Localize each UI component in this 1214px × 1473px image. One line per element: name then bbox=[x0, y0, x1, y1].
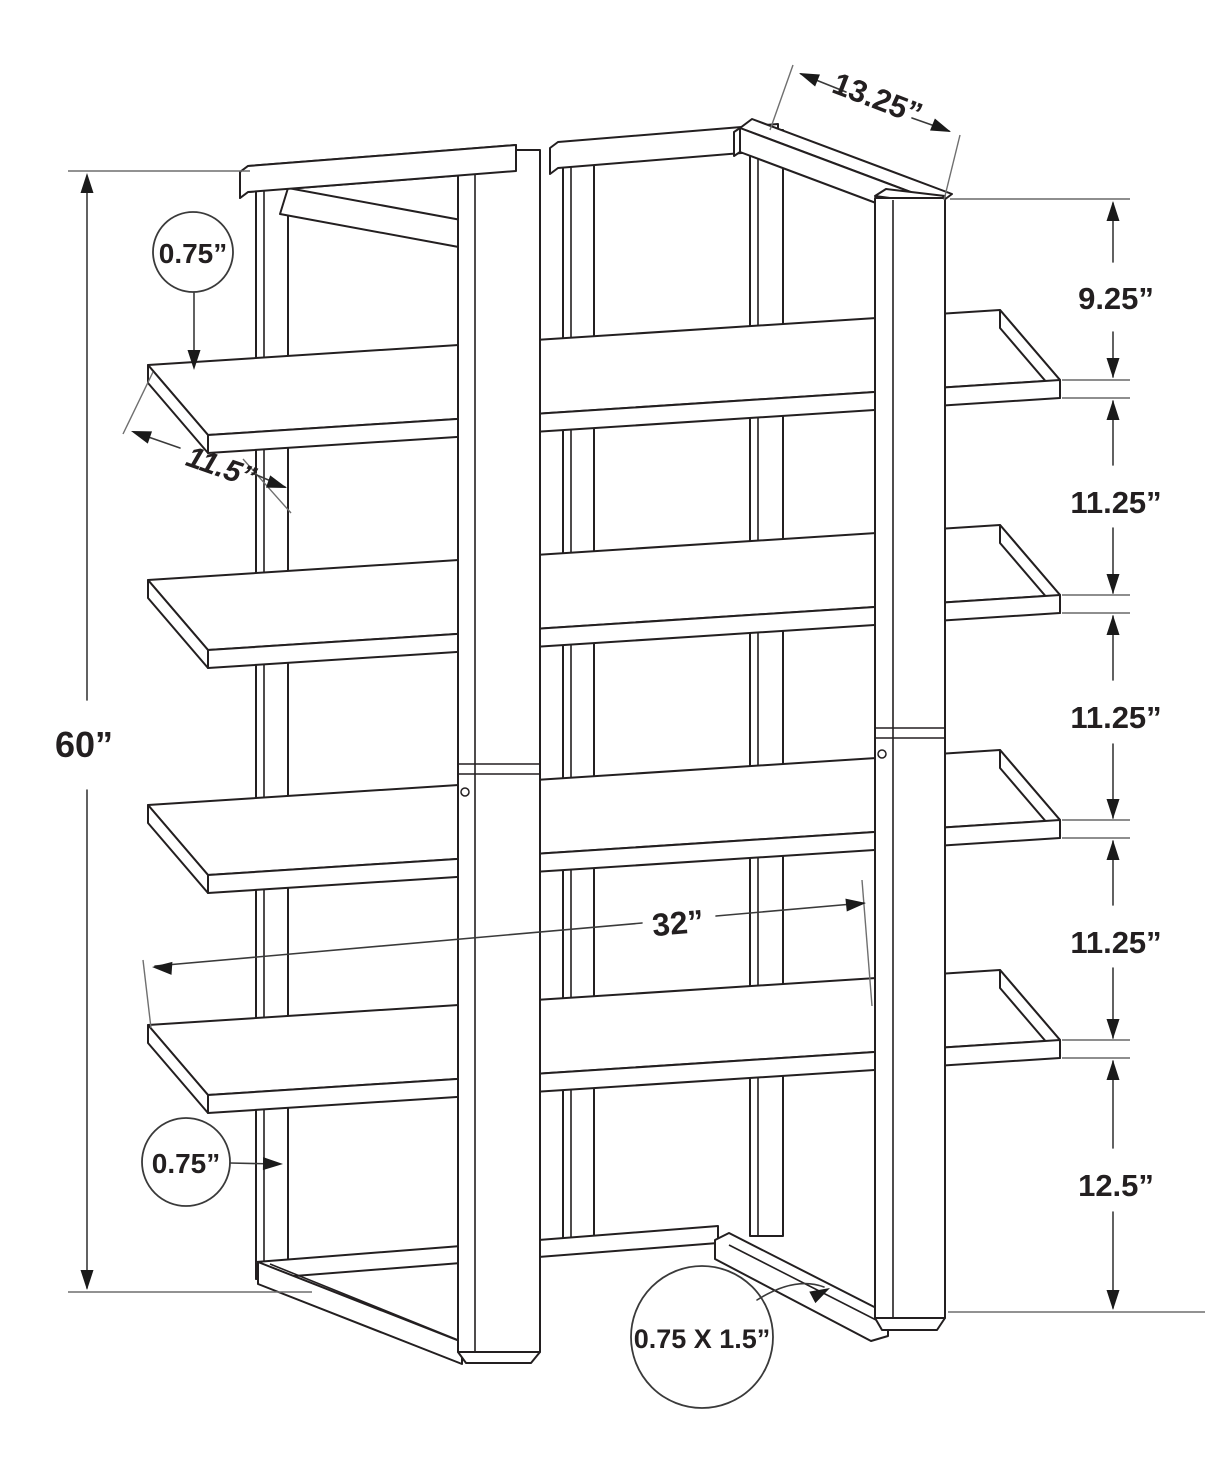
dimension-diagram-page: 60” 0.75” 11.5” 13.25” bbox=[0, 0, 1214, 1473]
label-bottom-gap: 12.5” bbox=[1078, 1168, 1154, 1203]
dim-shelf-gap-2: 11.25” bbox=[1070, 615, 1161, 819]
dimension-annotations: 60” 0.75” 11.5” 13.25” bbox=[55, 65, 1162, 1408]
label-shelf-thickness: 0.75” bbox=[159, 238, 228, 269]
label-post-thickness: 0.75” bbox=[152, 1148, 221, 1179]
left-frame-depth-rail bbox=[280, 188, 472, 248]
dim-shelf-gap-3: 11.25” bbox=[1070, 840, 1161, 1039]
bookcase-dimension-diagram: 60” 0.75” 11.5” 13.25” bbox=[0, 0, 1214, 1473]
dim-shelf-thickness: 0.75” bbox=[153, 212, 233, 370]
label-top-gap: 9.25” bbox=[1078, 281, 1154, 316]
label-shelf-width: 32” bbox=[651, 903, 706, 943]
connector-screw-right bbox=[878, 750, 886, 758]
left-front-post bbox=[458, 150, 540, 1363]
label-top-depth: 13.25” bbox=[828, 66, 927, 132]
dim-top-gap: 9.25” bbox=[1078, 201, 1154, 378]
label-shelf-gap-3: 11.25” bbox=[1070, 925, 1161, 960]
connector-screw-left bbox=[461, 788, 469, 796]
dim-shelf-gap-1: 11.25” bbox=[1070, 400, 1161, 594]
label-total-height: 60” bbox=[55, 724, 113, 765]
label-shelf-gap-2: 11.25” bbox=[1070, 700, 1161, 735]
left-frame-bottom-rail bbox=[258, 1262, 462, 1364]
right-front-post bbox=[875, 189, 945, 1330]
dim-bottom-gap: 12.5” bbox=[1078, 1060, 1154, 1310]
bookcase-drawing bbox=[148, 119, 1205, 1364]
label-shelf-gap-1: 11.25” bbox=[1070, 485, 1161, 520]
label-frame-tube: 0.75 X 1.5” bbox=[634, 1324, 771, 1354]
